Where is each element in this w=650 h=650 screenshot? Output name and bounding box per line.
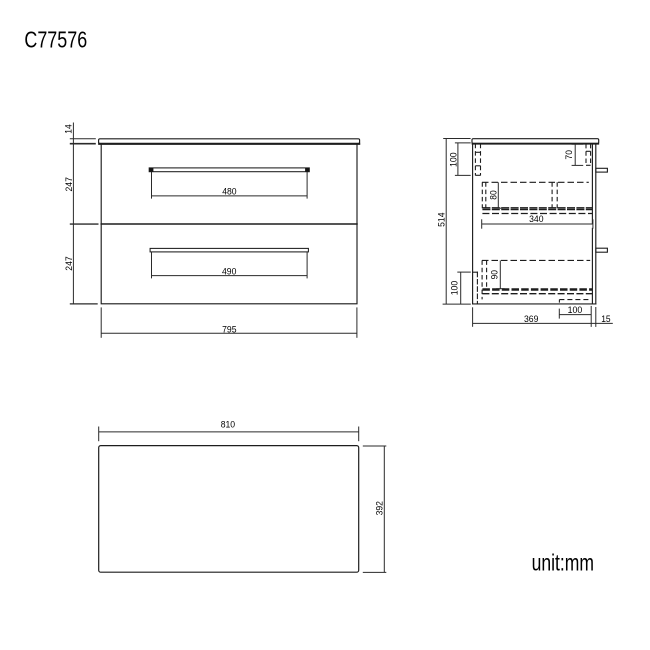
svg-text:392: 392 [374, 501, 385, 515]
svg-text:810: 810 [221, 419, 235, 430]
svg-text:369: 369 [524, 314, 538, 325]
svg-text:80: 80 [488, 190, 499, 199]
svg-text:340: 340 [529, 214, 543, 225]
svg-text:15: 15 [601, 314, 610, 325]
svg-text:480: 480 [222, 187, 236, 198]
svg-text:70: 70 [564, 150, 575, 159]
svg-text:90: 90 [490, 270, 501, 279]
svg-text:C77576: C77576 [24, 27, 87, 53]
svg-text:100: 100 [568, 305, 583, 316]
svg-text:14: 14 [63, 124, 74, 133]
svg-text:247: 247 [64, 177, 75, 191]
svg-text:unit:mm: unit:mm [532, 549, 594, 575]
svg-text:247: 247 [64, 256, 75, 270]
svg-text:514: 514 [436, 213, 447, 227]
svg-text:490: 490 [222, 266, 236, 277]
svg-text:795: 795 [222, 324, 236, 335]
svg-text:100: 100 [450, 281, 461, 296]
svg-text:100: 100 [448, 152, 459, 167]
